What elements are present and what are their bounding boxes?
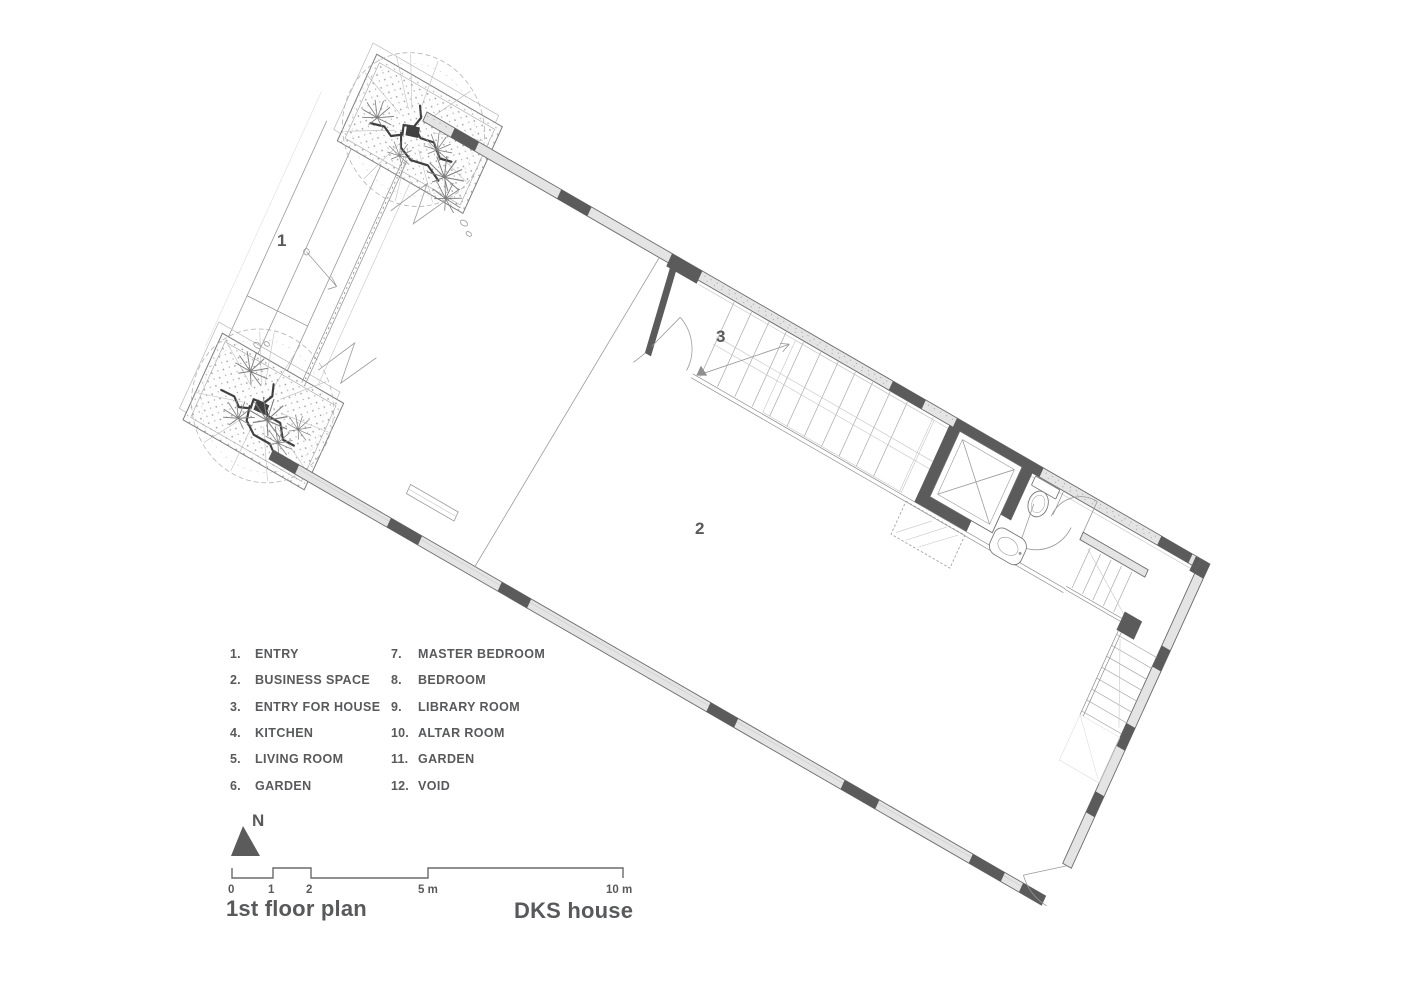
legend-label: ENTRY bbox=[255, 647, 299, 661]
entry-direction-arrow bbox=[295, 248, 344, 293]
entry-hall-wall bbox=[634, 264, 689, 356]
staircase-main bbox=[676, 298, 1099, 625]
legend-label: VOID bbox=[418, 779, 450, 793]
brace-marks bbox=[292, 172, 570, 521]
legend-num: 7. bbox=[391, 647, 402, 661]
page-title: 1st floor plan bbox=[226, 896, 367, 922]
scale-bar bbox=[232, 868, 623, 878]
north-label: N bbox=[252, 811, 264, 831]
elevator-shaft bbox=[915, 425, 1033, 550]
legend-num: 9. bbox=[391, 700, 402, 714]
interior-partitions bbox=[475, 238, 688, 604]
project-title: DKS house bbox=[514, 898, 633, 924]
legend-label: ENTRY FOR HOUSE bbox=[255, 700, 380, 714]
legend-num: 3. bbox=[230, 700, 241, 714]
glass-facade bbox=[302, 158, 418, 390]
scale-tick-label: 2 bbox=[306, 884, 312, 896]
planter-top bbox=[323, 43, 520, 237]
room-divider-line bbox=[475, 238, 659, 587]
legend-label: LIBRARY ROOM bbox=[418, 700, 520, 714]
legend-num: 1. bbox=[230, 647, 241, 661]
scale-tick-label: 1 bbox=[268, 884, 274, 896]
legend-label: KITCHEN bbox=[255, 726, 313, 740]
room-marker-entry: 1 bbox=[277, 231, 287, 251]
room-marker-business-space: 2 bbox=[695, 519, 705, 539]
legend-label: MASTER BEDROOM bbox=[418, 647, 545, 661]
legend-num: 5. bbox=[230, 752, 241, 766]
legend-num: 10. bbox=[391, 726, 409, 740]
scale-tick-label: 0 bbox=[228, 884, 234, 896]
legend-num: 4. bbox=[230, 726, 241, 740]
legend-label: BEDROOM bbox=[418, 673, 486, 687]
floor-plan-canvas: 1 2 3 1. ENTRY 7. MASTER BEDROOM 2. BUSI… bbox=[0, 0, 1409, 1000]
perimeter-walls bbox=[269, 112, 1210, 911]
stair-newel bbox=[1117, 612, 1143, 640]
legend-num: 6. bbox=[230, 779, 241, 793]
floor-plan-drawing bbox=[0, 0, 1409, 1000]
legend-label: GARDEN bbox=[255, 779, 312, 793]
hall-wall bbox=[1080, 532, 1148, 577]
legend-num: 12. bbox=[391, 779, 409, 793]
legend-num: 2. bbox=[230, 673, 241, 687]
room-marker-entry-for-house: 3 bbox=[716, 327, 726, 347]
scale-tick-label: 10 m bbox=[606, 884, 632, 896]
legend-num: 8. bbox=[391, 673, 402, 687]
legend-label: BUSINESS SPACE bbox=[255, 673, 370, 687]
legend-num: 11. bbox=[391, 752, 408, 766]
legend-label: GARDEN bbox=[418, 752, 475, 766]
legend-label: ALTAR ROOM bbox=[418, 726, 505, 740]
legend-label: LIVING ROOM bbox=[255, 752, 343, 766]
scale-tick-label: 5 m bbox=[418, 884, 438, 896]
